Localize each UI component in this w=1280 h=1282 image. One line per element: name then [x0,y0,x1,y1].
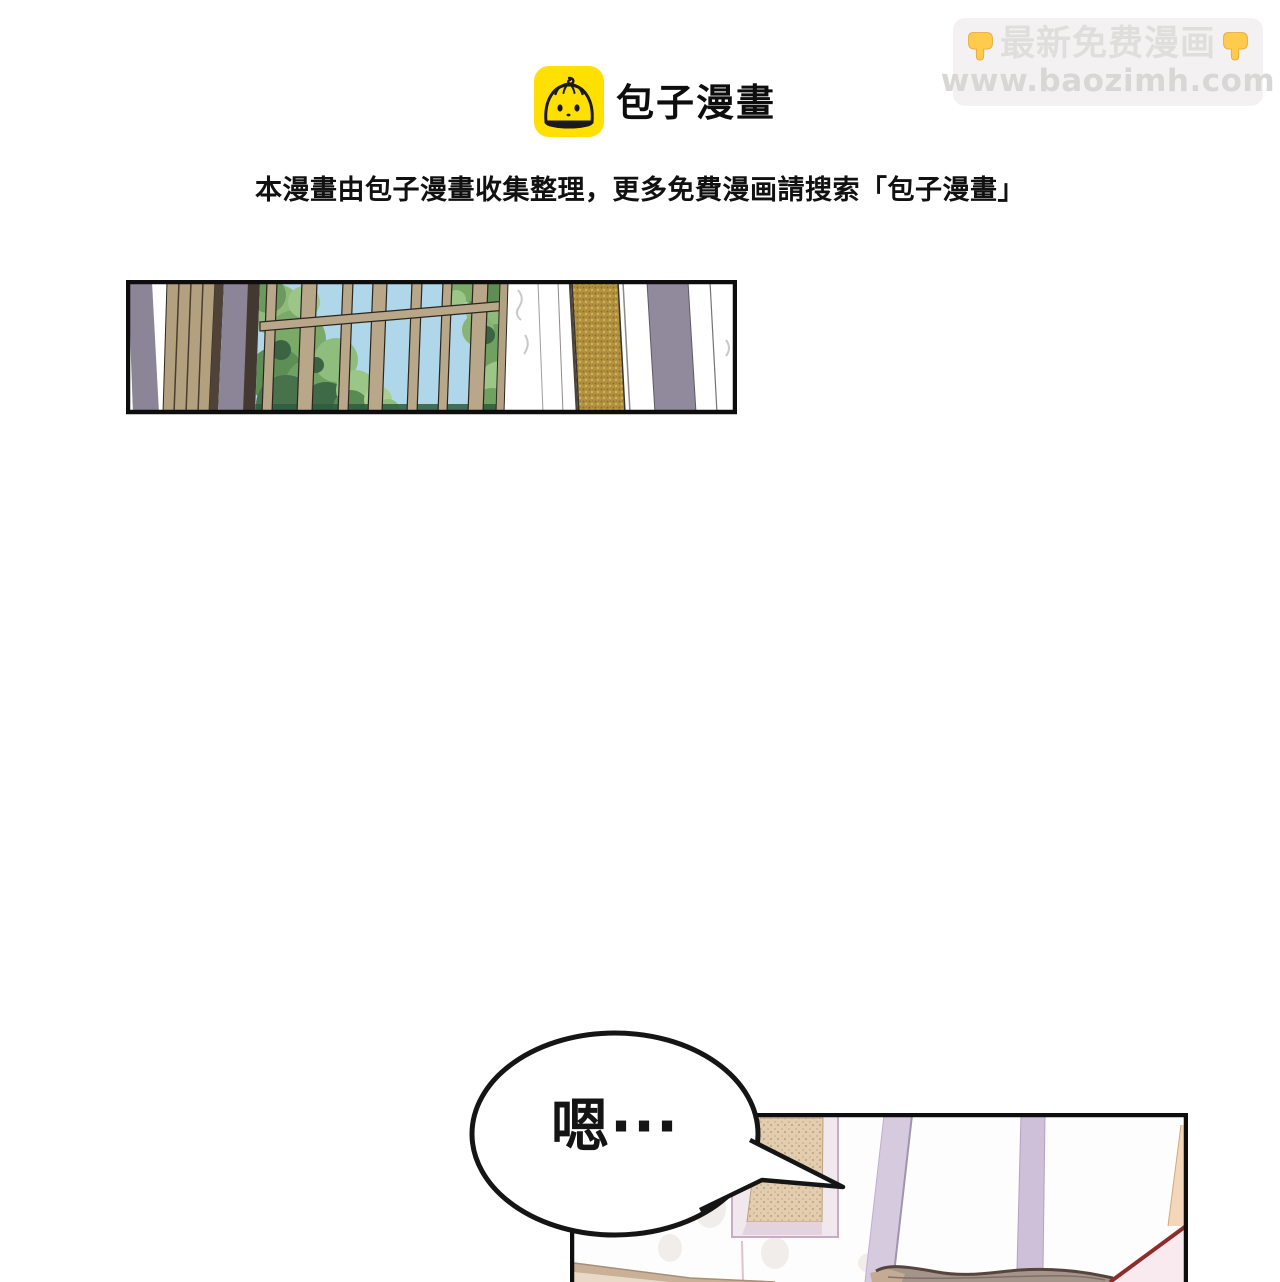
comic-reader-page: 最新免费漫画 www.baozimh.com 包子漫畫 本漫畫由包子漫畫收集整理… [0,0,1280,1282]
speech-bubble-text: 嗯··· [475,1097,755,1155]
gold-trim-strip [572,282,625,413]
baozi-logo-icon [534,66,604,137]
disclaimer-text: 本漫畫由包子漫畫收集整理，更多免費漫画請搜索「包子漫畫」 [0,176,1280,206]
pointing-down-icon [1219,28,1252,61]
promo-banner-line1: 最新免费漫画 [964,27,1252,62]
app-name: 包子漫畫 [616,84,776,122]
promo-text: 最新免费漫画 [1000,27,1216,62]
window [243,280,526,415]
comic-panel-window [126,280,737,415]
left-wall-strips [128,282,250,413]
promo-url: www.baozimh.com [941,66,1275,97]
promo-banner-link[interactable]: 最新免费漫画 www.baozimh.com [953,18,1263,106]
pointing-down-icon [964,28,997,61]
purple-trim-strip [647,282,696,413]
